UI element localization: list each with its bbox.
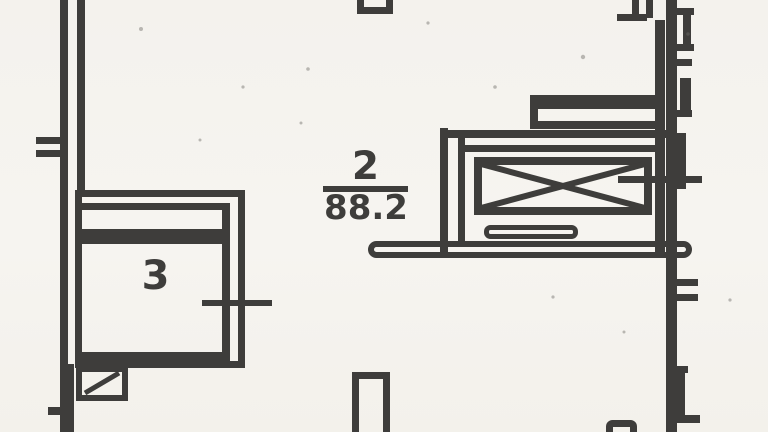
room-3-top-band: [82, 229, 228, 244]
door-opening-tick: [202, 300, 272, 306]
vent-shaft-symbol: [79, 369, 125, 398]
window-tick: [670, 294, 698, 301]
wall-tick: [677, 59, 692, 66]
window-tick-upper: [36, 137, 64, 144]
door-mark-top: [357, 0, 393, 14]
bottom-edge-fixture: [610, 424, 634, 432]
duct-block: [530, 95, 663, 129]
wall-tick: [677, 8, 694, 15]
room-3-number-label: 3: [130, 256, 182, 296]
vent-diagonal-line: [85, 373, 119, 393]
wall-tick-bottom: [48, 407, 62, 415]
right-exterior-wall: [617, 0, 700, 432]
room-2-area-label: 88.2: [316, 191, 416, 225]
room-2-number-label: 2: [340, 147, 392, 186]
wall-tick: [677, 110, 692, 117]
window-tick: [670, 279, 698, 286]
door-frame-bottom: [352, 372, 390, 432]
window-tick-lower: [36, 150, 64, 157]
wall-tick: [677, 44, 694, 51]
floor-plan-canvas: 3 2 88.2: [0, 0, 768, 432]
floor-slab-bar: [371, 244, 689, 255]
counterweight-bar: [487, 228, 576, 237]
